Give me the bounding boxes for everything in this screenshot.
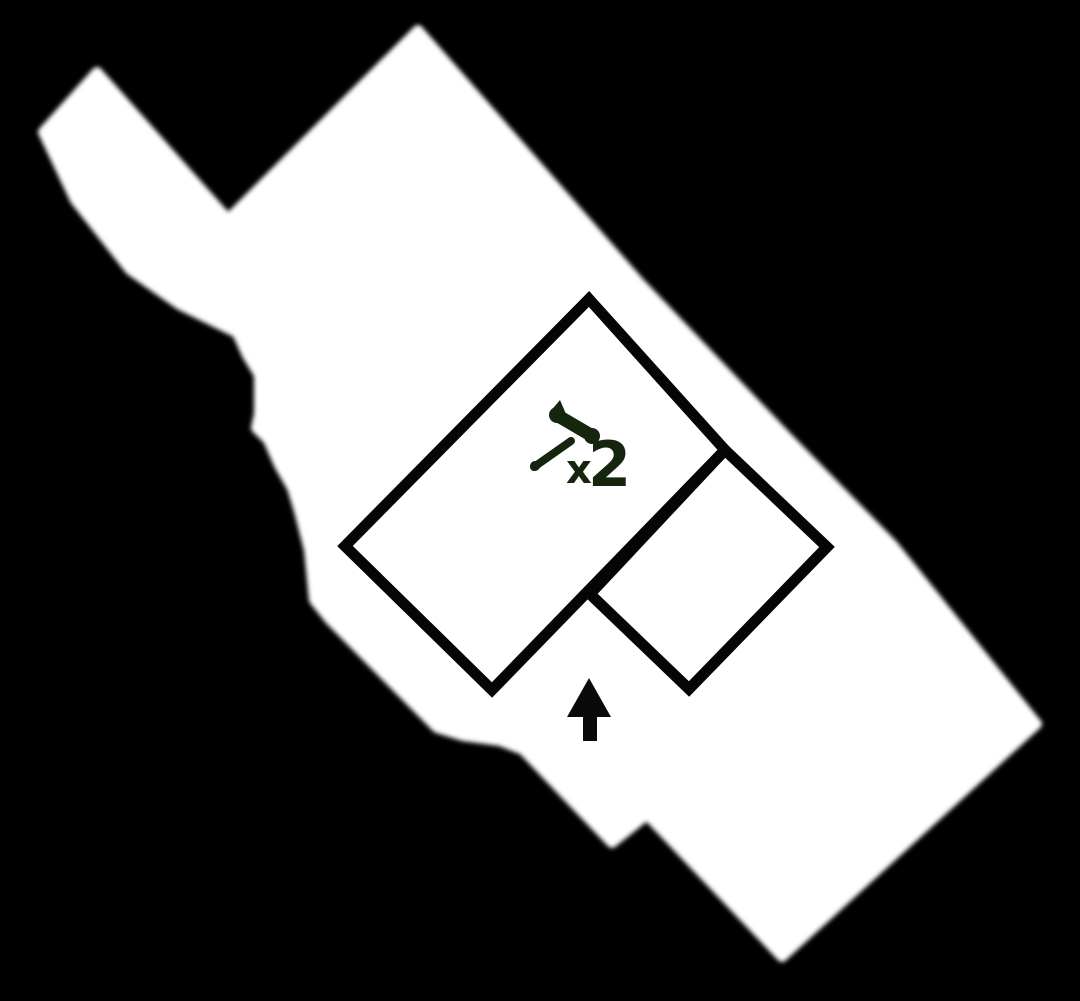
gavel-handle-end	[530, 461, 540, 471]
map-canvas: x 2	[0, 0, 1080, 1001]
game-map-screen: x 2	[0, 0, 1080, 1001]
multiplier-count: 2	[588, 428, 631, 501]
island-speck	[652, 800, 659, 807]
